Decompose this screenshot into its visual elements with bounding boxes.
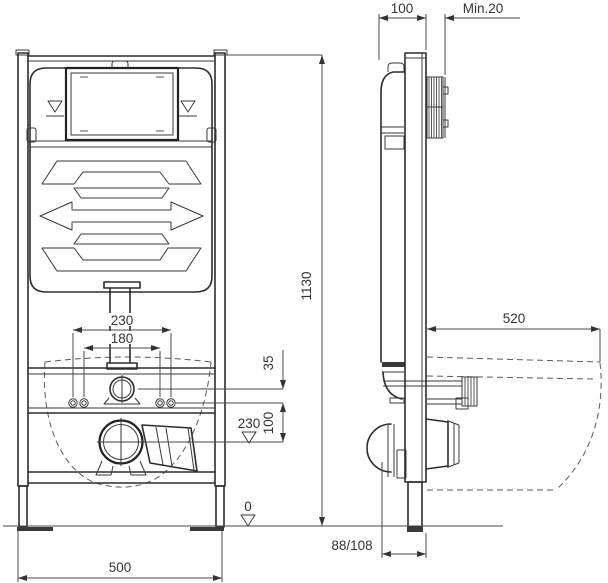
side-cistern: [381, 63, 405, 403]
dim-frame-height: 1130: [225, 55, 325, 526]
dim-label-outer-bolts: 230: [111, 313, 134, 328]
datum-floor: 0: [241, 499, 255, 526]
installation-drawing: 500 1130 230 180: [0, 0, 608, 583]
side-drain-socket: [426, 419, 459, 469]
dim-label-width: 500: [109, 560, 132, 575]
access-panel: [66, 61, 178, 140]
drain-connector: [96, 418, 197, 475]
dim-label-supply-to-drain: 100: [261, 412, 276, 435]
frame-feet: [17, 486, 224, 531]
side-frame-rail: [405, 53, 426, 532]
datum-triangle-icon: [242, 432, 256, 443]
dim-label-drain-wall-distance: 88/108: [331, 538, 372, 553]
side-drain-elbow: [367, 424, 406, 478]
dim-label-frame-depth: 100: [391, 1, 414, 16]
side-water-supply: [383, 377, 477, 409]
dim-label-height: 1130: [299, 271, 314, 300]
bowl-profile-dashed: [427, 357, 601, 490]
dim-label-supply-offset: 35: [261, 355, 276, 370]
dim-bowl-depth: 520: [427, 311, 600, 362]
flush-plate-unit: [427, 77, 448, 138]
dim-frame-width: 500: [18, 531, 222, 582]
datum-drain-height: 230: [238, 416, 261, 443]
water-level-icon: [46, 101, 197, 116]
water-supply-connector: [104, 375, 140, 404]
side-view: [367, 53, 601, 532]
dim-frame-depth: 100: [379, 1, 426, 60]
dim-label-bowl-depth: 520: [503, 311, 526, 326]
datum-triangle-icon: [241, 515, 255, 526]
dim-drain-wall-distance: 88/108: [331, 462, 426, 558]
technical-drawing-canvas: 500 1130 230 180: [0, 0, 608, 583]
datum-label-0: 0: [244, 499, 252, 514]
dim-label-min-wall: Min.20: [463, 1, 504, 16]
cistern-rib-pattern: [40, 161, 203, 271]
datum-label-230: 230: [238, 416, 261, 431]
dim-label-inner-bolts: 180: [111, 331, 134, 346]
cistern: [30, 68, 212, 292]
front-view: [16, 50, 227, 531]
dim-min-wall: Min.20: [445, 1, 520, 75]
